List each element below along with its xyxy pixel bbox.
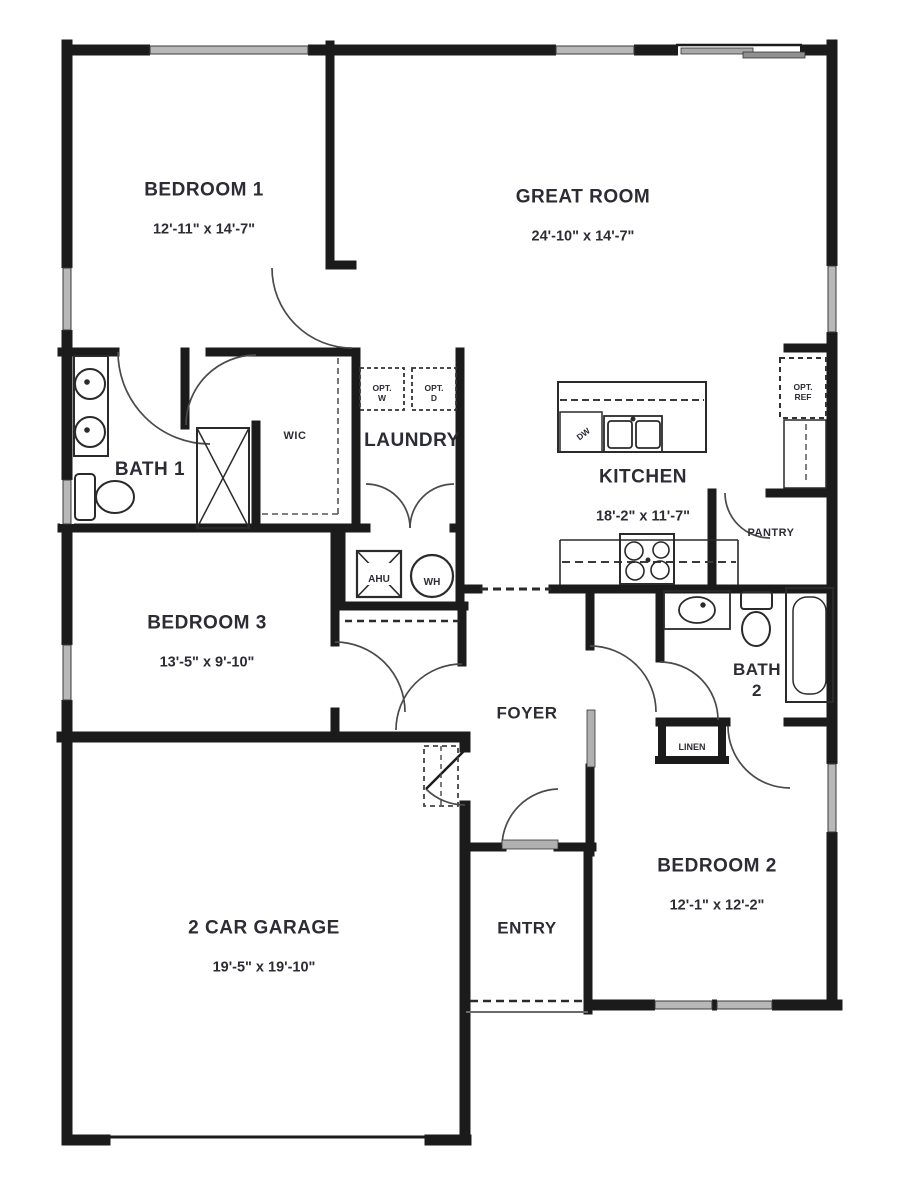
window bbox=[825, 764, 839, 832]
hall-door-leaf bbox=[587, 710, 595, 767]
bath2-toilet bbox=[741, 592, 772, 646]
laundry-door-arc bbox=[366, 484, 410, 528]
shower bbox=[197, 428, 249, 528]
opt-dryer-dashed bbox=[412, 368, 456, 410]
garage-door-arc bbox=[426, 789, 465, 805]
interior-walls bbox=[62, 45, 832, 1010]
bath1-toilet bbox=[75, 474, 134, 520]
bedroom1-door-arc bbox=[272, 268, 352, 348]
door-leaves bbox=[426, 710, 595, 849]
laundry-door-arc bbox=[410, 484, 454, 528]
bedroom3-door-arc bbox=[335, 642, 405, 712]
range-stove bbox=[620, 534, 674, 584]
hall-door-arc bbox=[590, 646, 656, 712]
floor-plan-drawing bbox=[0, 0, 900, 1200]
window bbox=[655, 998, 712, 1012]
pantry-door-arc bbox=[725, 493, 770, 538]
bath2-door-arc bbox=[660, 662, 718, 720]
wic-shelving bbox=[262, 358, 338, 518]
window bbox=[60, 645, 74, 700]
window bbox=[150, 43, 308, 57]
opt-washer-dashed bbox=[360, 368, 404, 410]
foyer-hall-door-arc bbox=[396, 664, 462, 730]
dashed-elements bbox=[262, 358, 826, 1001]
nook-counter bbox=[784, 420, 826, 488]
linen-closet-walls bbox=[659, 722, 725, 760]
window bbox=[60, 268, 74, 330]
bath2-vanity bbox=[664, 591, 730, 629]
window bbox=[60, 480, 74, 524]
front-door-arc bbox=[502, 789, 558, 845]
air-handler-unit bbox=[357, 551, 401, 597]
sliding-glass-door bbox=[676, 42, 805, 58]
dishwasher bbox=[560, 412, 602, 452]
front-door-leaf bbox=[502, 840, 558, 849]
bath1-vanity bbox=[74, 356, 108, 456]
bathtub bbox=[786, 588, 833, 702]
water-heater bbox=[411, 555, 453, 597]
window bbox=[717, 998, 772, 1012]
window bbox=[556, 43, 634, 57]
garage-service-door-leaf bbox=[426, 750, 465, 789]
bedroom2-door-arc bbox=[728, 726, 790, 788]
opt-ref-dashed bbox=[780, 358, 826, 418]
window bbox=[825, 266, 839, 332]
kitchen-sink bbox=[604, 416, 662, 452]
floor-plan: BEDROOM 1 12'-11" x 14'-7" GREAT ROOM 24… bbox=[0, 0, 900, 1200]
wic-door-arc bbox=[186, 355, 256, 425]
